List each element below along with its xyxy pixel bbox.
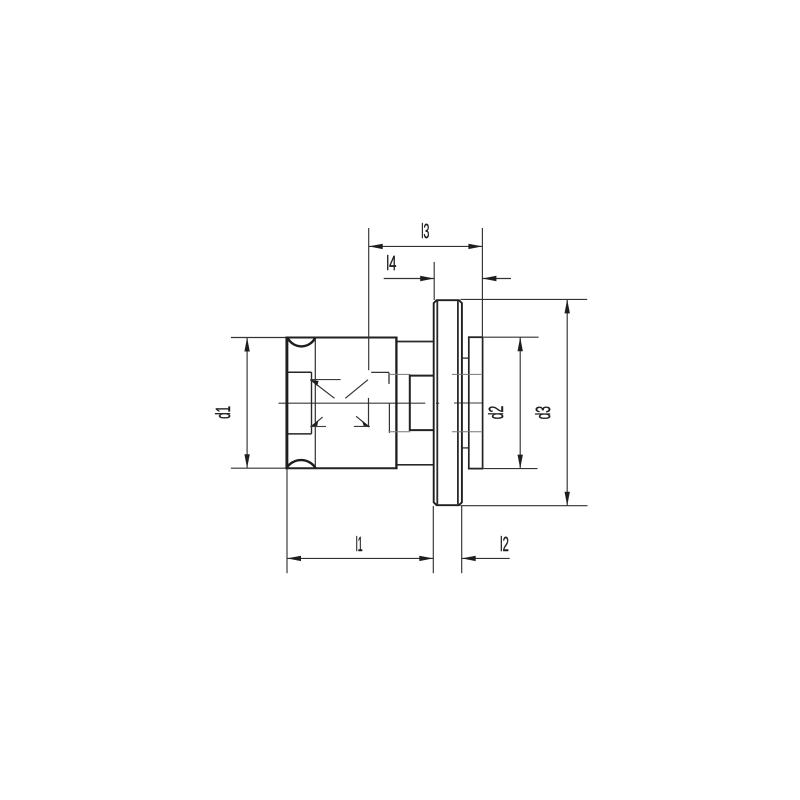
svg-text:l1: l1	[356, 533, 363, 556]
svg-text:d3: d3	[532, 406, 555, 419]
svg-text:l2: l2	[500, 533, 509, 556]
svg-text:d2: d2	[485, 406, 508, 419]
svg-text:d1: d1	[212, 406, 235, 419]
svg-text:l4: l4	[386, 252, 396, 275]
svg-text:l3: l3	[421, 220, 429, 243]
